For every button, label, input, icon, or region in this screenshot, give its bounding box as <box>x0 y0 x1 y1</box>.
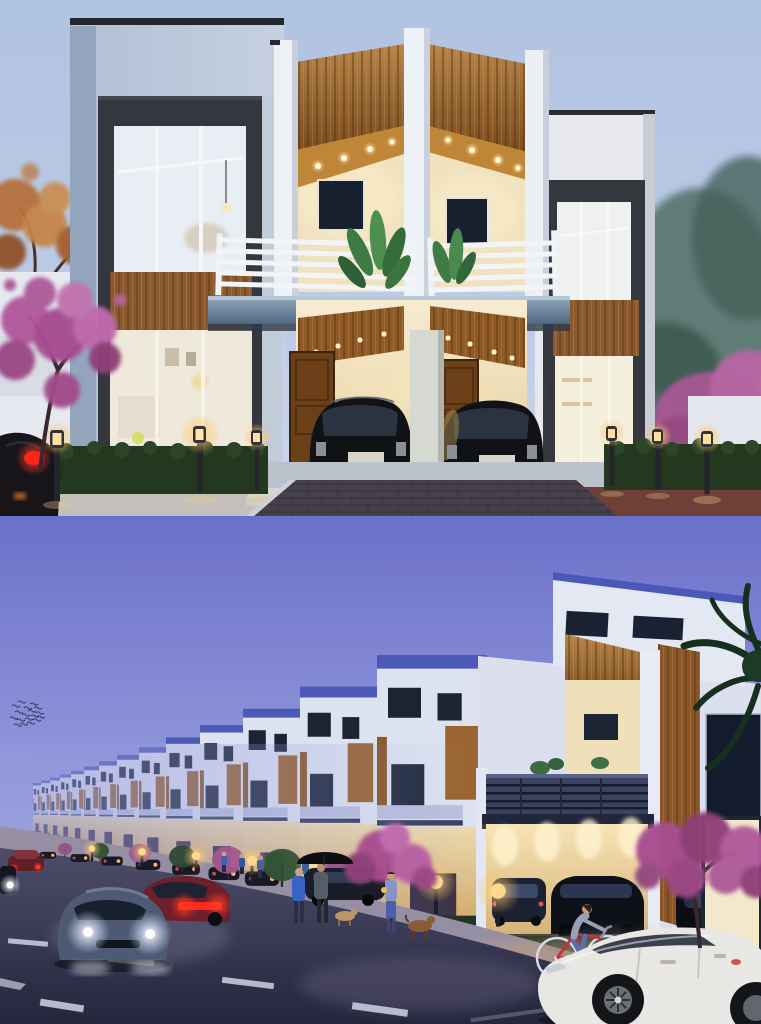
parapet-window <box>565 611 608 637</box>
near-small-window <box>584 714 618 740</box>
elevation-scene <box>0 0 761 516</box>
parapet-window <box>632 616 683 641</box>
left-parapet-coping <box>70 18 284 25</box>
right-upper-window <box>557 202 631 300</box>
street-scene <box>0 516 761 1024</box>
paver-texture <box>254 480 618 516</box>
door-handle <box>714 954 726 958</box>
hedge-right <box>604 438 761 490</box>
panel-elevation-render <box>0 0 761 516</box>
left-lower-window <box>110 330 252 460</box>
centre-window-left <box>318 180 364 230</box>
render-collage <box>0 0 761 1024</box>
panel-street-render <box>0 516 761 1024</box>
near-balcony-railing <box>486 774 648 814</box>
door-handle <box>660 960 676 964</box>
right-parapet-coping <box>535 110 655 115</box>
reflection-red <box>731 959 741 965</box>
frame-highlight <box>98 96 262 100</box>
